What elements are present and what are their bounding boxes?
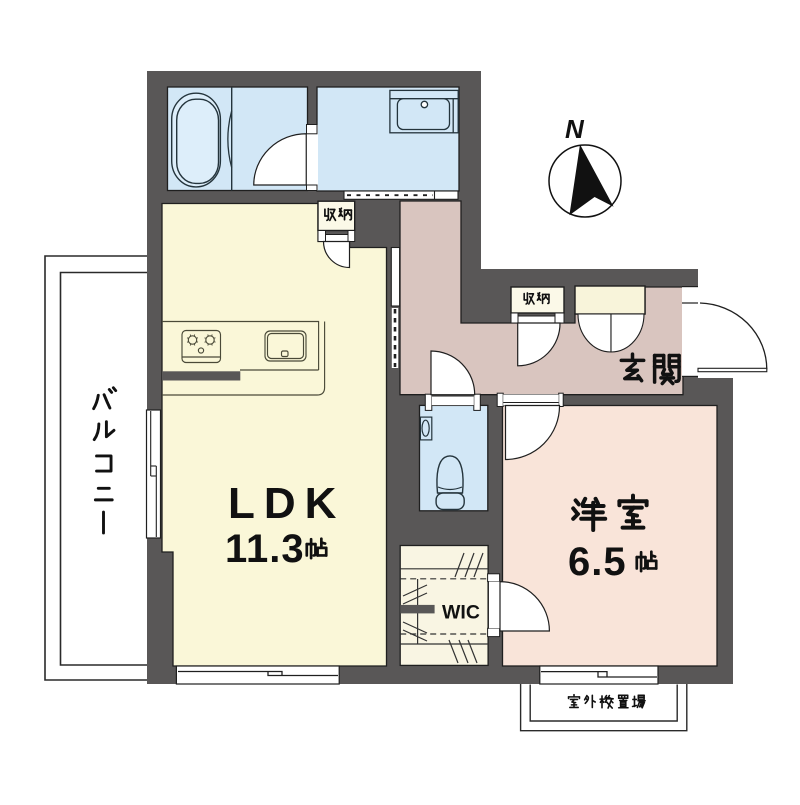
svg-text:WIC: WIC [442,602,480,624]
svg-text:N: N [565,114,585,144]
svg-text:11.3: 11.3 [225,527,305,571]
svg-text:6.5: 6.5 [568,540,627,584]
svg-text:LDK: LDK [228,479,345,528]
